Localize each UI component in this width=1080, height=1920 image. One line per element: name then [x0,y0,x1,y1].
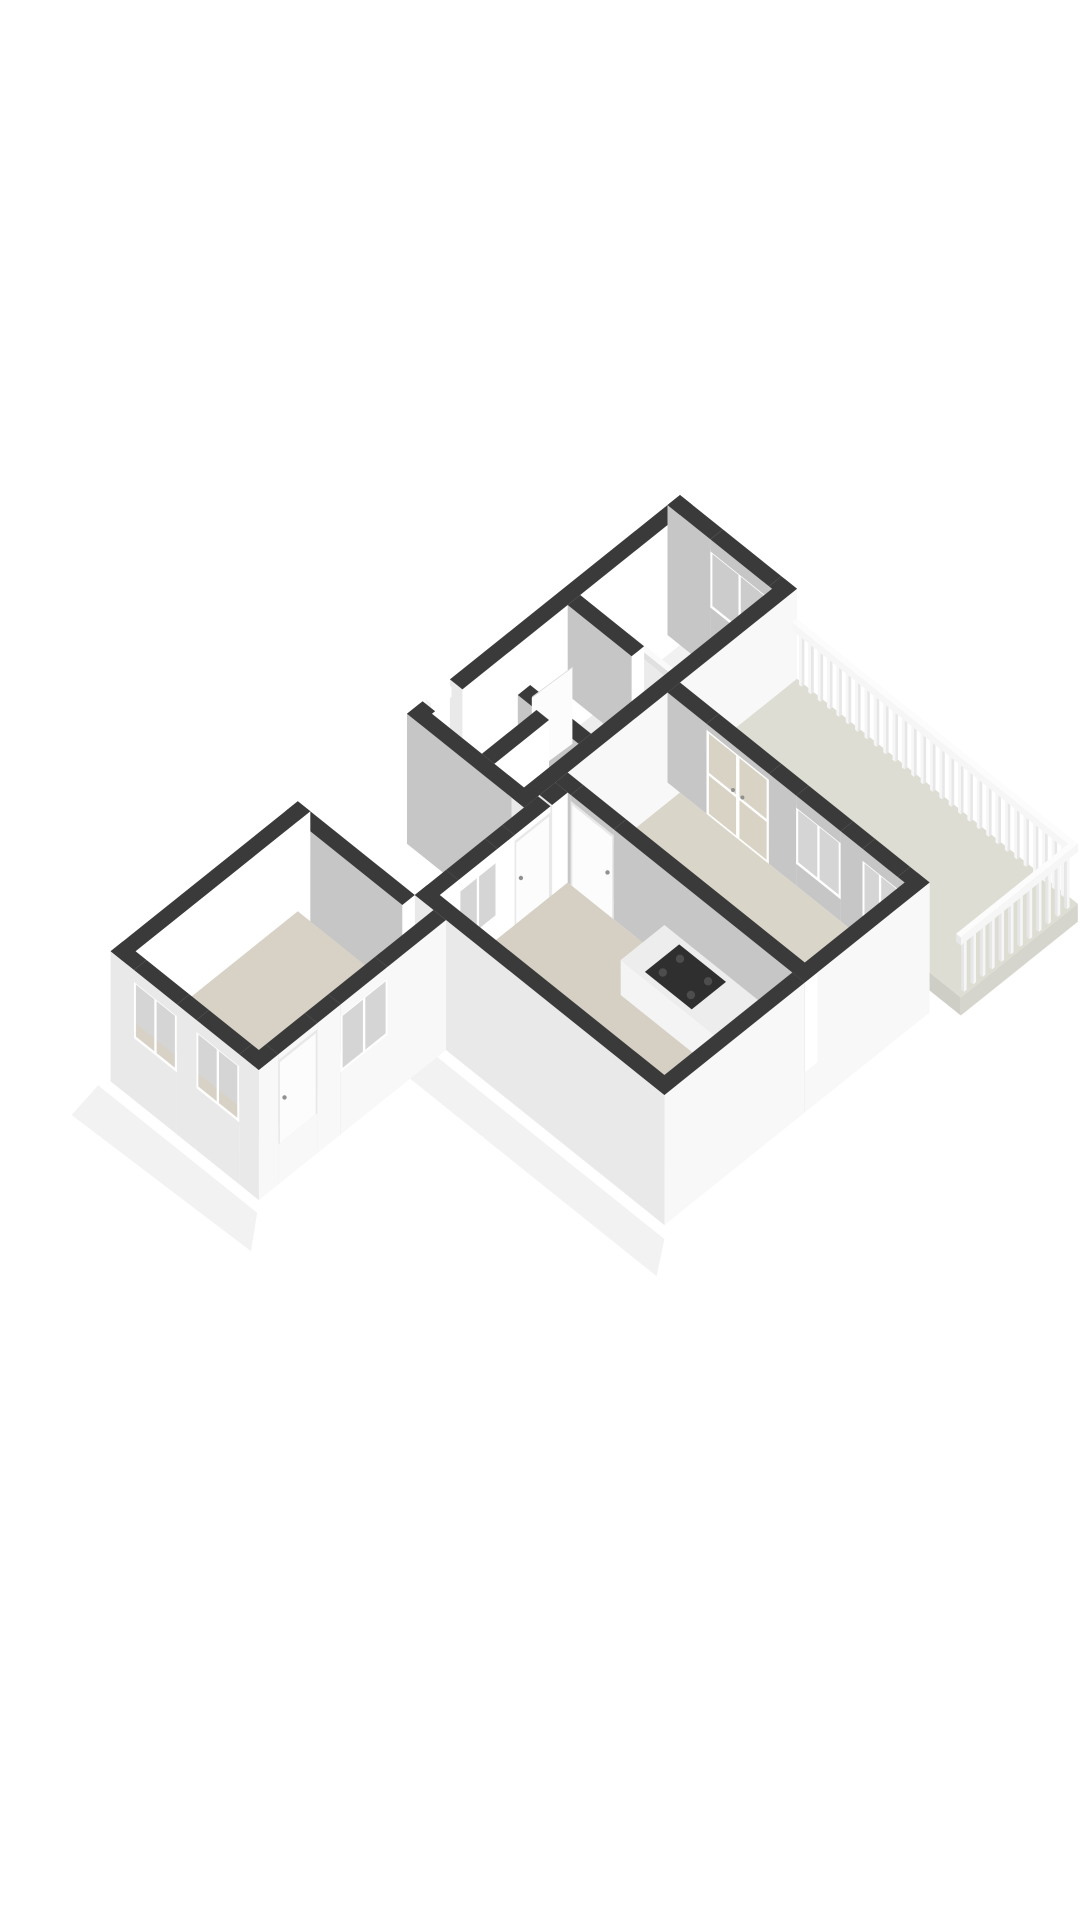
balcony-baluster-side [820,648,823,702]
balcony-baluster-side [905,715,908,769]
cooktop-burner [676,955,684,963]
balcony-baluster-front [1005,798,1008,852]
floorplan-svg [0,0,1080,1920]
cooktop-burner [659,968,667,976]
balcony-baluster-front [989,915,992,969]
balcony-baluster-front [1036,878,1039,932]
bedroom-left-window-1-mullion [154,998,156,1054]
balcony-baluster-front [980,923,983,977]
balcony-baluster-side [964,938,967,992]
balcony-baluster-side [1048,870,1051,924]
balcony-baluster-side [839,663,842,717]
bedroom-left-sw-wall-front [111,951,134,1100]
balcony-baluster-side [1011,900,1014,954]
balcony-baluster-side [961,760,964,814]
balcony-baluster-front [911,723,914,777]
balcony-baluster-side [1008,798,1011,852]
balcony-baluster-side [970,768,973,822]
balcony-baluster-side [1039,878,1042,932]
bedroom-left-se-wall-side [317,1004,340,1153]
french-door-handle [731,788,735,792]
bathroom-window-frame-l [710,549,712,609]
balcony-baluster-front [799,633,802,687]
balcony-baluster-side [933,738,936,792]
balcony-baluster-side [992,915,995,969]
bedroom-left-door-handle [282,1095,286,1099]
balcony-baluster-side [1017,805,1020,859]
balcony-baluster-front [999,908,1002,962]
balcony-baluster-front [874,693,877,747]
bedroom-right-window-1-mullion [817,825,819,881]
french-door-handle [740,796,744,800]
balcony-baluster-front [1045,870,1048,924]
balcony-baluster-side [1001,908,1004,962]
bedroom-left-sw-wall-side [259,1060,272,1200]
bedroom-left-sw-wall-front [177,1004,197,1150]
balcony-baluster-front [818,648,821,702]
bedroom-right-window-1-frame-l [796,806,798,866]
cooktop-burner [687,991,695,999]
balcony-baluster-front [939,745,942,799]
balcony-baluster-front [846,670,849,724]
balcony-baluster-front [1017,893,1020,947]
balcony-baluster-front [855,678,858,732]
balcony-baluster-front [827,655,830,709]
balcony-baluster-front [961,938,964,992]
balcony-baluster-side [1029,885,1032,939]
balcony-baluster-side [802,633,805,687]
balcony-baluster-side [998,790,1001,844]
cooktop-burner [704,977,712,985]
balcony-baluster-side [1058,863,1061,917]
bedroom-left-window-1-frame-r [175,1013,177,1073]
balcony-baluster-front [865,685,868,739]
living-room-window-mullion [477,875,479,931]
balcony-baluster-side [811,640,814,694]
balcony-baluster-front [808,640,811,694]
balcony-baluster-side [973,930,976,984]
balcony-baluster-front [836,663,839,717]
bedroom-left-sw-wall-front [239,1054,258,1200]
balcony-baluster-front [971,930,974,984]
balcony-baluster-front [1024,813,1027,867]
balcony-baluster-front [1027,885,1030,939]
balcony-baluster-side [849,670,852,724]
balcony-baluster-side [877,693,880,747]
bedroom-left-window-2-frame-r [237,1063,239,1123]
balcony-baluster-front [902,715,905,769]
balcony-baluster-front [1055,863,1058,917]
balcony-baluster-front [893,708,896,762]
bedroom-right-window-2-frame-l [863,859,865,919]
living-e-wall-front [652,1085,665,1225]
living-room-window-frame-l [496,859,498,919]
balcony-baluster-front [996,790,999,844]
balcony-baluster-front [1014,805,1017,859]
balcony-baluster-front [986,783,989,837]
balcony-baluster-side [1067,855,1070,909]
bedroom-left-window-2-mullion [217,1048,219,1104]
balcony-baluster-side [858,678,861,732]
balcony-baluster-side [983,923,986,977]
balcony-baluster-front [967,768,970,822]
bedroom-left-window-3-mullion [363,997,365,1053]
balcony-baluster-side [942,745,945,799]
bedroom-left-window-3-frame-r [341,1013,343,1073]
bedroom-right-window-1-frame-r [839,840,841,900]
balcony-baluster-side [951,753,954,807]
balcony-baluster-front [958,760,961,814]
bedroom-left-window-2-frame-l [196,1030,198,1090]
balcony-baluster-side [1026,813,1029,867]
floorplan-3d-render [0,0,1080,1920]
bedroom-left-window-1-frame-l [134,980,136,1040]
balcony-baluster-front [949,753,952,807]
balcony-baluster-front [930,738,933,792]
balcony-baluster-side [923,730,926,784]
balcony-baluster-front [1008,900,1011,954]
balcony-baluster-side [989,783,992,837]
living-divider-wall-side [805,973,818,1073]
balcony-baluster-front [977,775,980,829]
living-bedroom-right-door-handle [605,870,609,874]
bedroom-left-window-3-frame-l [386,977,388,1037]
entry-door-handle [519,876,523,880]
balcony-baluster-side [1036,820,1039,874]
balcony-baluster-side [867,685,870,739]
balcony-baluster-side [895,708,898,762]
balcony-baluster-side [914,723,917,777]
balcony-baluster-front [883,700,886,754]
balcony-baluster-side [1020,893,1023,947]
balcony-baluster-side [830,655,833,709]
balcony-baluster-side [980,775,983,829]
balcony-baluster-front [1033,820,1036,874]
balcony-baluster-front [921,730,924,784]
balcony-baluster-side [886,700,889,754]
balcony-baluster-front [1064,855,1067,909]
